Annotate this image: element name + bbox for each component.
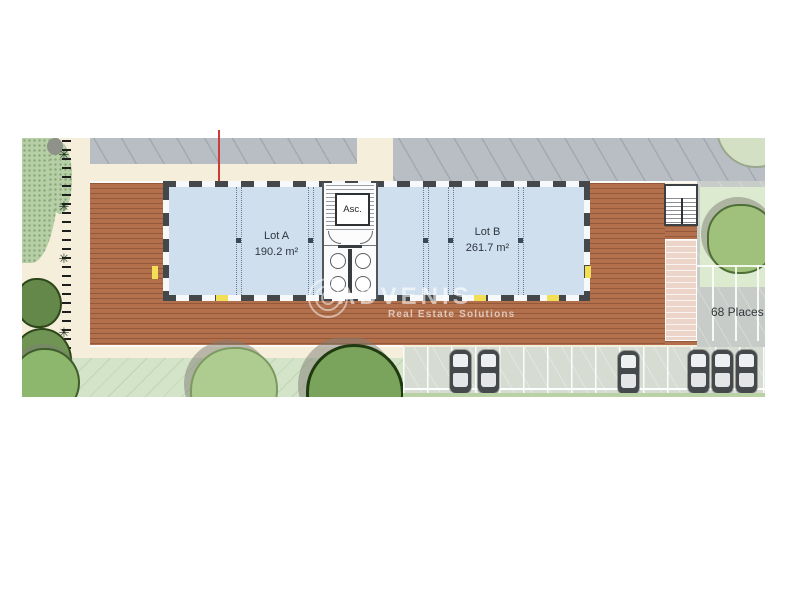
plant-icon: ✳	[56, 252, 72, 265]
wc-fixture-icon	[355, 253, 371, 269]
site-plan: ✳ ✳ ✳ ✳ ✳ ✳ 68 Places	[0, 0, 800, 600]
facade-marker	[216, 295, 228, 301]
parking-count-label: 68 Places	[711, 305, 764, 319]
lot-b-label: Lot B 261.7 m²	[450, 225, 525, 257]
sidewalk	[357, 138, 393, 166]
car-icon	[688, 350, 709, 393]
boundary-line	[218, 130, 220, 181]
wc-fixture-icon	[330, 253, 346, 269]
access-ramp	[666, 240, 696, 340]
parking-line	[735, 265, 737, 341]
facade-marker	[547, 295, 559, 301]
watermark-tagline: Real Estate Solutions	[388, 309, 515, 320]
lot-b-name: Lot B	[450, 225, 525, 241]
tree-row	[22, 338, 403, 397]
tree-icon	[707, 204, 765, 274]
sidewalk	[90, 164, 393, 181]
parking-line	[712, 265, 714, 341]
car-icon	[618, 351, 639, 394]
facade-marker	[152, 266, 158, 279]
car-icon	[736, 350, 757, 393]
plumbing	[338, 245, 362, 248]
parking-row	[403, 347, 765, 397]
car-icon	[712, 350, 733, 393]
plant-icon: ✳	[56, 148, 72, 161]
tree-icon	[22, 348, 80, 397]
parking-line	[697, 265, 765, 267]
wall-corner	[584, 295, 590, 301]
car-icon	[450, 350, 471, 393]
external-staircase	[664, 184, 698, 226]
lot-b-area: 261.7 m²	[450, 241, 525, 257]
facade-marker	[474, 295, 486, 301]
elevator-label: Asc.	[343, 204, 361, 215]
watermark-logo-icon	[321, 291, 335, 305]
wall-west	[163, 187, 169, 295]
tree-icon	[22, 278, 62, 328]
car-icon	[478, 350, 499, 393]
plant-icon: ✳	[56, 200, 72, 213]
partition-line	[423, 187, 429, 295]
wall-corner	[584, 181, 590, 187]
facade-marker	[585, 266, 591, 278]
parking-line	[757, 265, 759, 341]
lot-a-area: 190.2 m²	[239, 245, 314, 261]
watermark-brand: ADVENIS	[338, 283, 473, 311]
lot-a-label: Lot A 190.2 m²	[239, 229, 314, 261]
elevator: Asc.	[335, 193, 370, 226]
stair-rail	[681, 198, 683, 224]
lot-a-name: Lot A	[239, 229, 314, 245]
wall-east	[584, 187, 590, 295]
